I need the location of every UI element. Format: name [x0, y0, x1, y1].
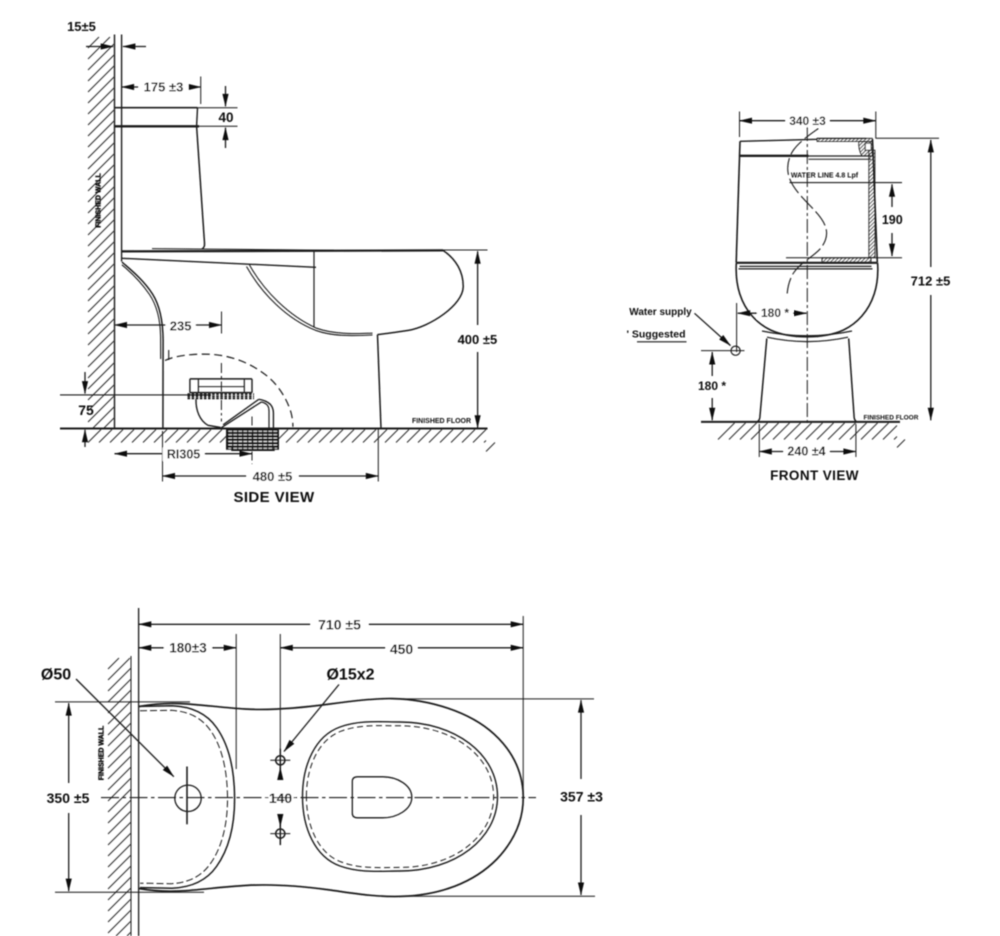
- svg-text:340 ±3: 340 ±3: [789, 114, 826, 128]
- svg-text:FINISHED WALL: FINISHED WALL: [99, 725, 106, 780]
- svg-text:Ø50: Ø50: [41, 666, 71, 683]
- svg-text:40: 40: [218, 110, 233, 125]
- svg-text:180±3: 180±3: [169, 641, 207, 656]
- svg-text:357 ±3: 357 ±3: [560, 788, 603, 804]
- svg-text:450: 450: [390, 641, 414, 657]
- svg-text:75: 75: [78, 402, 94, 418]
- svg-text:712 ±5: 712 ±5: [911, 274, 951, 289]
- svg-text:SIDE VIEW: SIDE VIEW: [233, 489, 315, 506]
- svg-text:350 ±5: 350 ±5: [47, 790, 90, 806]
- svg-text:FINISHED WALL: FINISHED WALL: [96, 173, 103, 228]
- svg-text:15±5: 15±5: [67, 19, 96, 34]
- svg-text:710 ±5: 710 ±5: [318, 616, 361, 632]
- svg-text:FINISHED FLOOR: FINISHED FLOOR: [864, 415, 919, 422]
- svg-text:RI305: RI305: [167, 447, 200, 461]
- svg-text:FRONT VIEW: FRONT VIEW: [770, 468, 859, 483]
- svg-text:' Suggested: ' Suggested: [626, 328, 685, 340]
- svg-text:190: 190: [882, 213, 903, 227]
- svg-text:235: 235: [170, 318, 192, 333]
- svg-text:Water supply: Water supply: [629, 307, 692, 318]
- svg-text:240 ±4: 240 ±4: [787, 445, 825, 459]
- svg-text:180 *: 180 *: [698, 379, 726, 393]
- svg-text:Ø15x2: Ø15x2: [326, 666, 374, 683]
- svg-text:WATER LINE 4.8 Lpf: WATER LINE 4.8 Lpf: [791, 173, 859, 180]
- svg-text:480 ±5: 480 ±5: [253, 469, 293, 484]
- svg-text:180 *: 180 *: [761, 306, 789, 320]
- svg-text:400 ±5: 400 ±5: [458, 332, 498, 347]
- svg-text:FINISHED FLOOR: FINISHED FLOOR: [412, 418, 471, 425]
- svg-text:175 ±3: 175 ±3: [144, 80, 184, 95]
